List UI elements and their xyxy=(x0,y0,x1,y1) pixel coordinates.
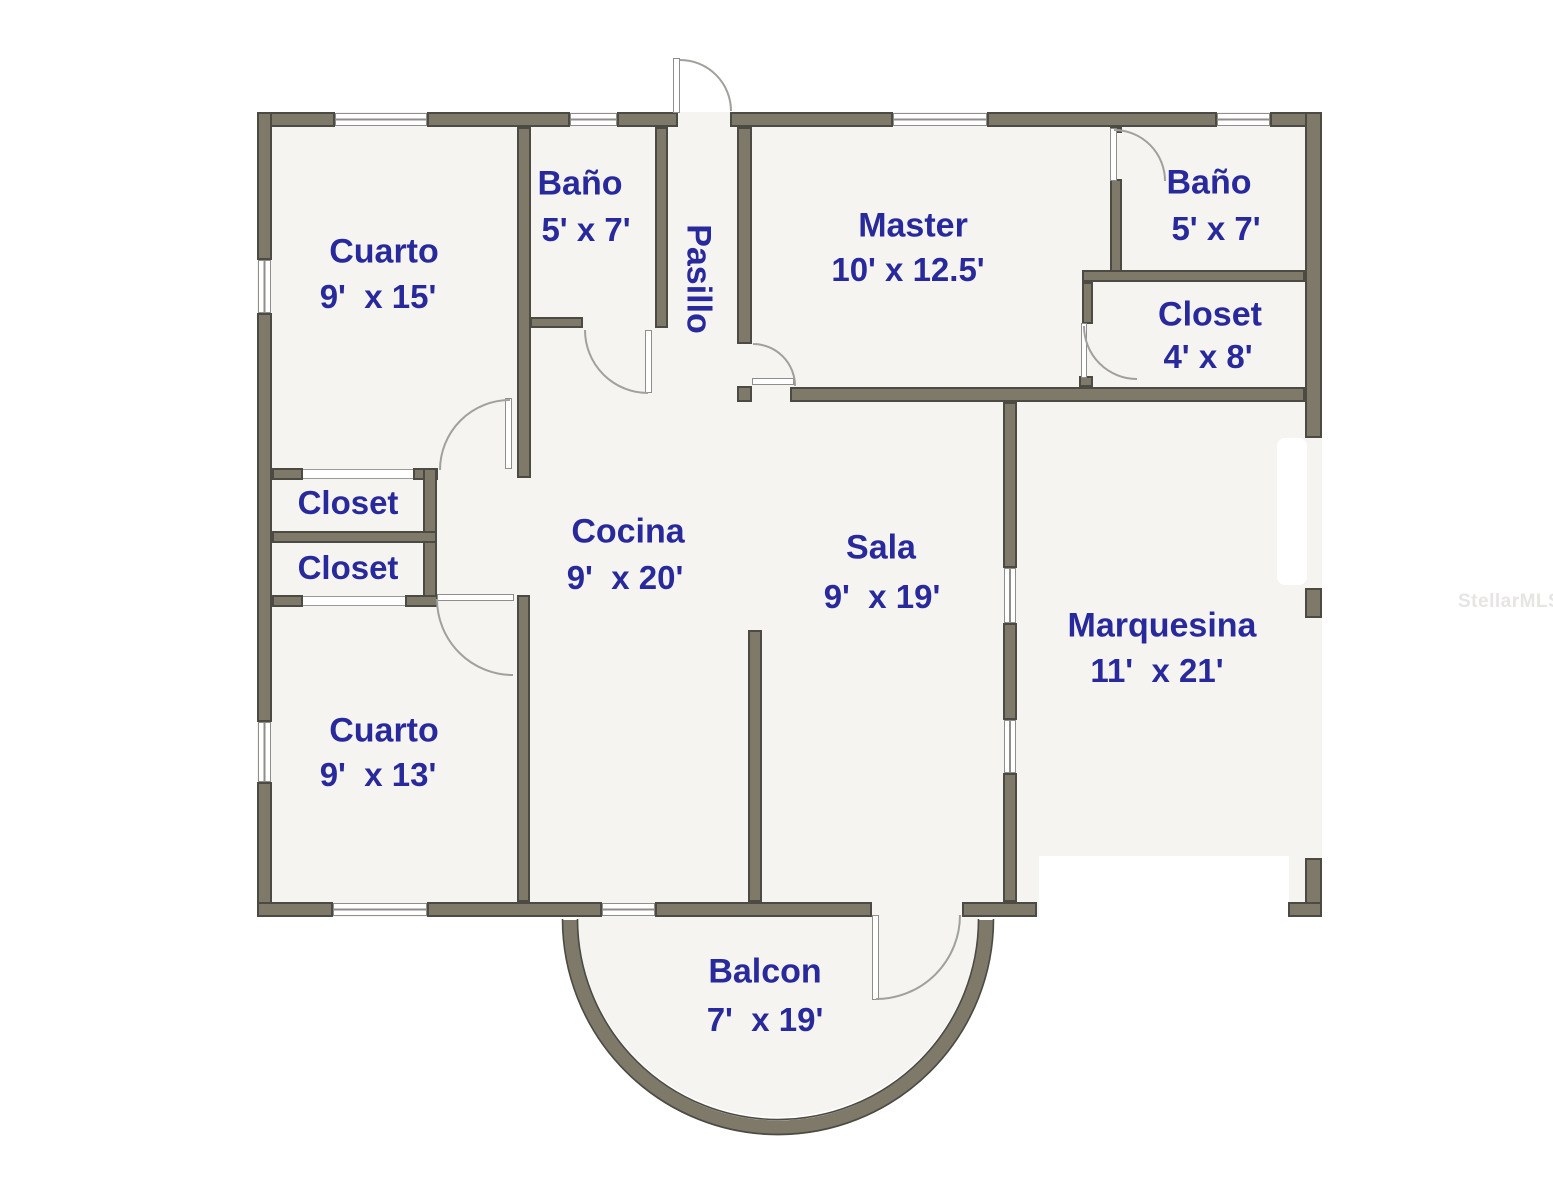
wall-segment xyxy=(517,127,531,478)
wall-segment xyxy=(257,313,272,722)
wall-segment xyxy=(517,595,530,902)
wall-segment xyxy=(272,468,303,480)
wall-segment xyxy=(617,112,678,127)
room-label-pasillo: Pasillo xyxy=(679,224,716,334)
wall-segment xyxy=(405,595,438,607)
room-dims-master: 10' x 12.5' xyxy=(831,252,984,288)
wall-segment xyxy=(1082,270,1305,282)
window xyxy=(1004,568,1016,623)
wall-segment xyxy=(272,531,437,543)
door-leaf-bano-top xyxy=(645,330,652,393)
wall-segment xyxy=(257,782,272,917)
wall-segment xyxy=(1082,282,1093,324)
wall-segment xyxy=(1288,902,1322,917)
white-mask-marquesina xyxy=(1039,856,1289,917)
room-dims-cocina: 9' x 20' xyxy=(567,560,684,596)
window xyxy=(893,113,987,126)
wall-segment xyxy=(655,902,872,917)
door-leaf-balcon xyxy=(872,915,879,1000)
room-dims-closet-right: 4' x 8' xyxy=(1163,339,1252,375)
door-leaf-entry xyxy=(673,58,680,113)
wall-segment xyxy=(730,112,893,127)
room-label-cuarto-bottom: Cuarto xyxy=(329,712,439,749)
wall-segment xyxy=(748,630,762,902)
wall-segment xyxy=(257,112,272,260)
closet-opening xyxy=(303,596,405,606)
window xyxy=(602,903,655,916)
wall-segment xyxy=(655,127,668,328)
door-leaf-bano-right xyxy=(1110,128,1117,181)
window xyxy=(333,903,427,916)
room-label-cocina: Cocina xyxy=(571,513,684,550)
room-dims-marquesina: 11' x 21' xyxy=(1090,653,1223,689)
room-dims-sala: 9' x 19' xyxy=(824,579,941,615)
room-dims-balcon: 7' x 19' xyxy=(707,1002,824,1038)
room-label-balcon: Balcon xyxy=(708,953,821,990)
closet-opening xyxy=(303,469,413,479)
wall-segment xyxy=(1003,402,1017,568)
door-leaf-cuarto-top xyxy=(505,398,512,469)
wall-segment xyxy=(272,595,303,607)
window xyxy=(570,113,617,126)
floor-plan: Cuarto 9' x 15' Baño 5' x 7' Pasillo Mas… xyxy=(0,0,1553,1200)
wall-segment xyxy=(257,902,333,917)
wall-segment xyxy=(1003,773,1017,902)
white-mask-right xyxy=(1277,438,1307,585)
wall-segment xyxy=(1305,112,1322,438)
window xyxy=(258,722,271,782)
wall-segment xyxy=(427,112,570,127)
wall-segment xyxy=(737,127,752,344)
window xyxy=(1004,720,1016,773)
window xyxy=(258,260,271,313)
wall-segment xyxy=(737,386,752,402)
wall-segment xyxy=(790,387,1305,402)
window xyxy=(335,113,427,126)
door-leaf-closet-right xyxy=(1081,323,1087,378)
wall-segment xyxy=(987,112,1217,127)
room-label-closet-lower: Closet xyxy=(298,550,399,586)
watermark: StellarMLS xyxy=(1458,591,1553,613)
wall-segment xyxy=(1110,179,1122,272)
door-leaf-master xyxy=(752,378,794,385)
room-label-cuarto-top: Cuarto xyxy=(329,233,439,270)
window xyxy=(1217,113,1270,126)
room-dims-cuarto-top: 9' x 15' xyxy=(320,279,437,315)
door-leaf-cuarto-bottom xyxy=(437,594,514,601)
room-label-bano-right: Baño xyxy=(1167,164,1252,201)
room-label-closet-right: Closet xyxy=(1158,296,1262,333)
wall-segment xyxy=(530,317,583,328)
wall-segment xyxy=(427,902,602,917)
room-dims-bano-right: 5' x 7' xyxy=(1171,211,1260,247)
door-arc-entry xyxy=(680,60,731,111)
room-dims-bano-top: 5' x 7' xyxy=(541,212,630,248)
room-dims-cuarto-bottom: 9' x 13' xyxy=(320,757,437,793)
wall-segment xyxy=(1003,623,1017,720)
room-label-sala: Sala xyxy=(846,529,916,566)
wall-segment xyxy=(962,902,1037,917)
room-label-closet-upper: Closet xyxy=(298,485,399,521)
wall-segment xyxy=(1305,588,1322,618)
room-label-master: Master xyxy=(858,207,968,244)
room-label-marquesina: Marquesina xyxy=(1068,607,1257,644)
room-label-bano-top: Baño xyxy=(538,165,623,202)
